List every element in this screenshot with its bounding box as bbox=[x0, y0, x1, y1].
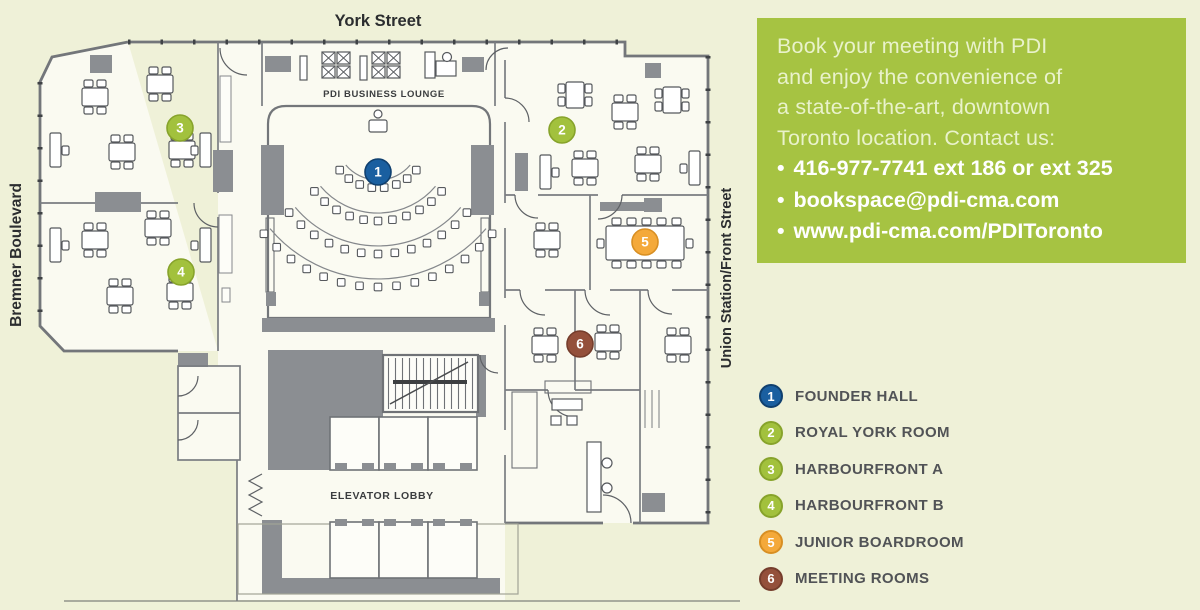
wall-stub bbox=[479, 292, 489, 306]
legend-badge: 2 bbox=[759, 421, 783, 445]
legend-label: ROYAL YORK ROOM bbox=[795, 424, 950, 441]
bullet-icon: • bbox=[777, 216, 785, 248]
bullet-icon: • bbox=[777, 185, 785, 217]
info-bullets: • 416-977-7741 ext 186 or ext 325 • book… bbox=[777, 153, 1176, 248]
pillar bbox=[261, 145, 284, 215]
svg-text:1: 1 bbox=[374, 165, 382, 180]
svg-text:3: 3 bbox=[176, 121, 184, 136]
legend-item-3: 3HARBOURFRONT A bbox=[759, 457, 964, 481]
legend-badge: 6 bbox=[759, 567, 783, 591]
divider-door-arc bbox=[194, 203, 218, 227]
legend-label: FOUNDER HALL bbox=[795, 388, 918, 405]
right-wing-floor bbox=[505, 42, 708, 523]
map-marker-2: 2 bbox=[549, 117, 575, 143]
street-label-bremner: Bremner Boulevard bbox=[8, 183, 25, 327]
legend-badge: 4 bbox=[759, 494, 783, 518]
corridor-closet bbox=[220, 76, 231, 142]
legend-item-5: 5JUNIOR BOARDROOM bbox=[759, 530, 964, 554]
drinking-fountain bbox=[222, 288, 230, 302]
website-url: www.pdi-cma.com/PDIToronto bbox=[794, 216, 1103, 248]
core-slab bbox=[268, 417, 330, 470]
legend-label: MEETING ROOMS bbox=[795, 570, 929, 587]
legend-item-2: 2ROYAL YORK ROOM bbox=[759, 421, 964, 445]
legend-badge: 3 bbox=[759, 457, 783, 481]
legend-label: HARBOURFRONT B bbox=[795, 497, 944, 514]
column bbox=[178, 353, 208, 367]
phone-line: • 416-977-7741 ext 186 or ext 325 bbox=[777, 153, 1176, 185]
legend-item-6: 6MEETING ROOMS bbox=[759, 567, 964, 591]
lounge-sofa bbox=[265, 56, 291, 72]
room-legend: 1FOUNDER HALL2ROYAL YORK ROOM3HARBOURFRO… bbox=[759, 384, 964, 604]
info-intro-line: and enjoy the convenience of bbox=[777, 62, 1176, 93]
info-intro: Book your meeting with PDI and enjoy the… bbox=[777, 31, 1176, 153]
info-intro-line: a state-of-the-art, downtown bbox=[777, 92, 1176, 123]
wall-stub bbox=[266, 292, 276, 306]
side-table bbox=[191, 228, 211, 262]
side-table bbox=[191, 133, 211, 167]
boardroom-wall-slab bbox=[600, 202, 650, 211]
svg-text:5: 5 bbox=[641, 235, 649, 250]
equipment-block bbox=[642, 493, 665, 512]
street-label-york: York Street bbox=[335, 12, 422, 30]
lounge-sofa bbox=[462, 57, 484, 72]
legend-badge: 5 bbox=[759, 530, 783, 554]
column bbox=[213, 150, 233, 192]
map-marker-5: 5 bbox=[632, 229, 658, 255]
svg-text:2: 2 bbox=[558, 123, 566, 138]
email-line: • bookspace@pdi-cma.com bbox=[777, 185, 1176, 217]
map-marker-3: 3 bbox=[167, 115, 193, 141]
website-line: • www.pdi-cma.com/PDIToronto bbox=[777, 216, 1176, 248]
map-marker-4: 4 bbox=[168, 259, 194, 285]
divider-door-block bbox=[95, 192, 141, 212]
legend-badge: 1 bbox=[759, 384, 783, 408]
legend-item-4: 4HARBOURFRONT B bbox=[759, 494, 964, 518]
pillar bbox=[471, 145, 494, 215]
svg-text:4: 4 bbox=[177, 265, 185, 280]
flyer-canvas: 123456 York Street Bremner Boulevard Uni… bbox=[0, 0, 1200, 610]
map-marker-6: 6 bbox=[567, 331, 593, 357]
column bbox=[645, 63, 661, 78]
core-slab bbox=[268, 350, 383, 417]
legend-label: HARBOURFRONT A bbox=[795, 461, 943, 478]
column bbox=[90, 55, 112, 73]
founder-hall-south-wall bbox=[262, 318, 495, 332]
column bbox=[515, 153, 528, 191]
email-address: bookspace@pdi-cma.com bbox=[794, 185, 1060, 217]
street-label-union-front: Union Station/Front Street bbox=[719, 188, 735, 369]
corridor-closet bbox=[219, 215, 232, 273]
svg-text:6: 6 bbox=[576, 337, 584, 352]
info-box: Book your meeting with PDI and enjoy the… bbox=[757, 18, 1186, 263]
meeting-table bbox=[147, 67, 173, 101]
phone-number: 416-977-7741 ext 186 or ext 325 bbox=[794, 153, 1113, 185]
info-intro-line: Toronto location. Contact us: bbox=[777, 123, 1176, 154]
legend-label: JUNIOR BOARDROOM bbox=[795, 534, 964, 551]
info-intro-line: Book your meeting with PDI bbox=[777, 31, 1176, 62]
legend-item-1: 1FOUNDER HALL bbox=[759, 384, 964, 408]
core-slab bbox=[262, 578, 500, 594]
floor-plan: 123456 York Street Bremner Boulevard Uni… bbox=[0, 0, 750, 610]
bullet-icon: • bbox=[777, 153, 785, 185]
elevator-lobby-label: ELEVATOR LOBBY bbox=[330, 490, 434, 502]
business-lounge-label: PDI BUSINESS LOUNGE bbox=[323, 89, 445, 100]
map-marker-1: 1 bbox=[365, 159, 391, 185]
